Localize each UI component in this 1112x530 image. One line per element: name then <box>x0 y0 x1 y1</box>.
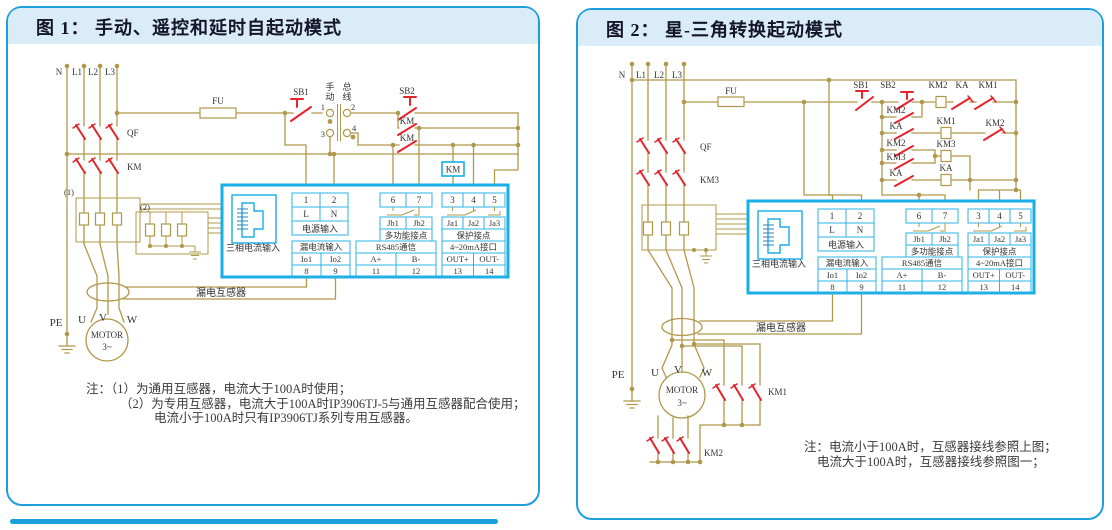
note-line: （2）为专用互感器，电流大于100A时IP3906TJ-5与通用互感器配合使用； <box>120 397 526 412</box>
figure1-header: 图 1： 手动、遥控和延时自起动模式 <box>8 8 538 44</box>
figure2-notes: 注：电流小于100A时，互感器接线参照上图； 电流大于100A时，互感器接线参照… <box>804 440 1057 469</box>
figure1-title: 图 1： 手动、遥控和延时自起动模式 <box>36 14 342 40</box>
note-line: 注：电流小于100A时，互感器接线参照上图； <box>804 440 1057 455</box>
note-line: 电流小于100A时只有IP3906TJ系列专用互感器。 <box>154 411 526 426</box>
page-footer-bar <box>10 519 498 524</box>
figure1-notes: 注：（1）为通用互感器，电流大于100A时使用； （2）为专用互感器，电流大于1… <box>86 382 526 426</box>
figure2-header: 图 2： 星-三角转换起动模式 <box>578 10 1102 46</box>
note-line: 电流大于100A时，互感器接线参照图一； <box>817 455 1057 470</box>
page: { "figure1": { "title": "图 1： 手动、遥控和延时自起… <box>0 0 1112 530</box>
note-line: 注：（1）为通用互感器，电流大于100A时使用； <box>86 382 526 397</box>
figure2-title: 图 2： 星-三角转换起动模式 <box>606 16 843 42</box>
figure1-panel: 图 1： 手动、遥控和延时自起动模式 注：（1）为通用互感器，电流大于100A时… <box>6 6 540 506</box>
figure2-panel: 图 2： 星-三角转换起动模式 注：电流小于100A时，互感器接线参照上图； 电… <box>576 8 1104 520</box>
